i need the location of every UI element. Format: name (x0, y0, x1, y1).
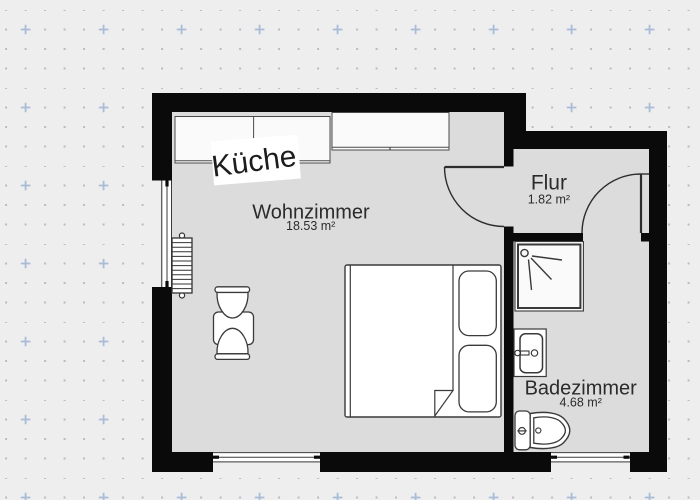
svg-text:18.53 m²: 18.53 m² (286, 219, 335, 233)
svg-text:4.68 m²: 4.68 m² (560, 395, 602, 409)
svg-text:1.82 m²: 1.82 m² (528, 192, 570, 206)
svg-text:Flur: Flur (531, 172, 567, 195)
